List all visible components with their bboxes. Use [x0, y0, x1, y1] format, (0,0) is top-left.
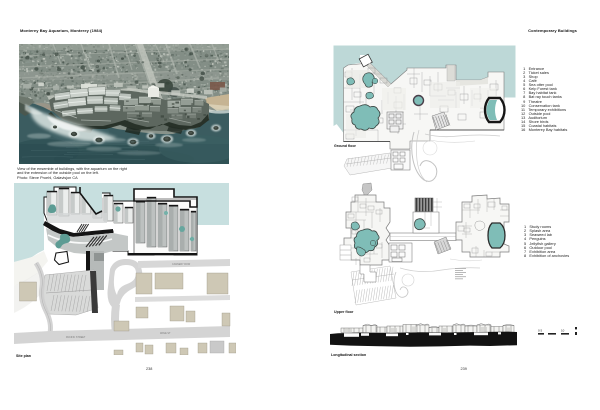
svg-text:10: 10: [561, 329, 565, 333]
svg-text:PACIFIC STREET: PACIFIC STREET: [66, 336, 86, 339]
svg-text:0 5: 0 5: [538, 329, 543, 333]
svg-text:WAVE ST: WAVE ST: [160, 332, 171, 335]
svg-text:CANNERY ROW: CANNERY ROW: [172, 263, 191, 266]
